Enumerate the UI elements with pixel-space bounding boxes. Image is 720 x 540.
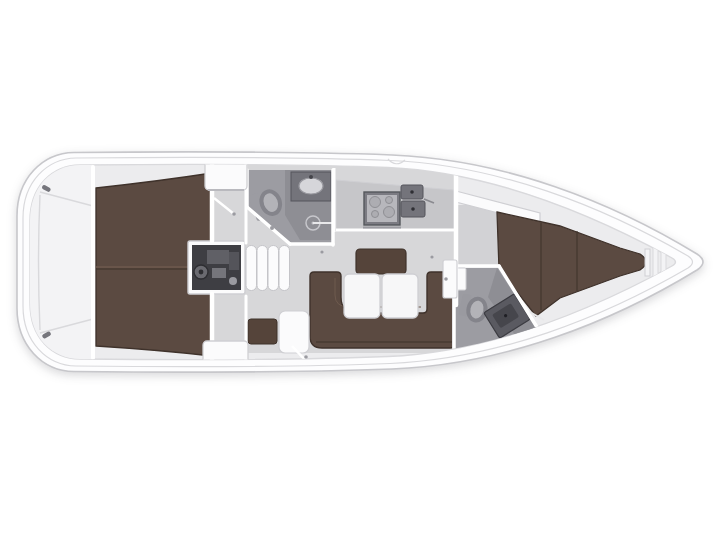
interior <box>28 156 690 372</box>
burner <box>372 211 379 218</box>
port-door-knob <box>304 355 308 359</box>
burner <box>370 197 381 208</box>
floor-dot <box>430 255 433 258</box>
engine-pulley-hub <box>199 270 204 275</box>
table-leaf-right <box>382 274 418 318</box>
floor-dot <box>320 250 323 253</box>
burner <box>386 197 393 204</box>
starboard-door-knob <box>232 212 236 216</box>
forward-door-knob <box>444 277 448 281</box>
lazarette-floor <box>28 164 93 360</box>
step-4 <box>279 246 290 291</box>
aft-head-faucet <box>309 175 313 179</box>
port-entry-seat <box>248 319 277 344</box>
engine-part-2 <box>229 252 239 270</box>
aft-head-sink <box>299 178 323 194</box>
salon-bench <box>356 249 406 274</box>
engine-part-3 <box>212 268 226 278</box>
aft-head-door-knob <box>270 226 274 230</box>
engine-filter <box>229 277 237 285</box>
stern-lazarette <box>28 164 93 360</box>
floorplan-svg <box>0 0 720 540</box>
yacht-floorplan-canvas <box>0 0 720 540</box>
step-1 <box>246 246 257 291</box>
companionway-steps <box>246 246 290 291</box>
burner <box>384 207 395 218</box>
table-leaf-left <box>344 274 380 318</box>
engine-compartment <box>188 241 245 294</box>
step-3 <box>268 246 279 291</box>
engine-part-1 <box>207 250 229 264</box>
step-2 <box>257 246 268 291</box>
sink-drain-2 <box>411 207 415 211</box>
sink-drain-1 <box>410 190 414 194</box>
v-berth-foot-board <box>645 249 650 276</box>
